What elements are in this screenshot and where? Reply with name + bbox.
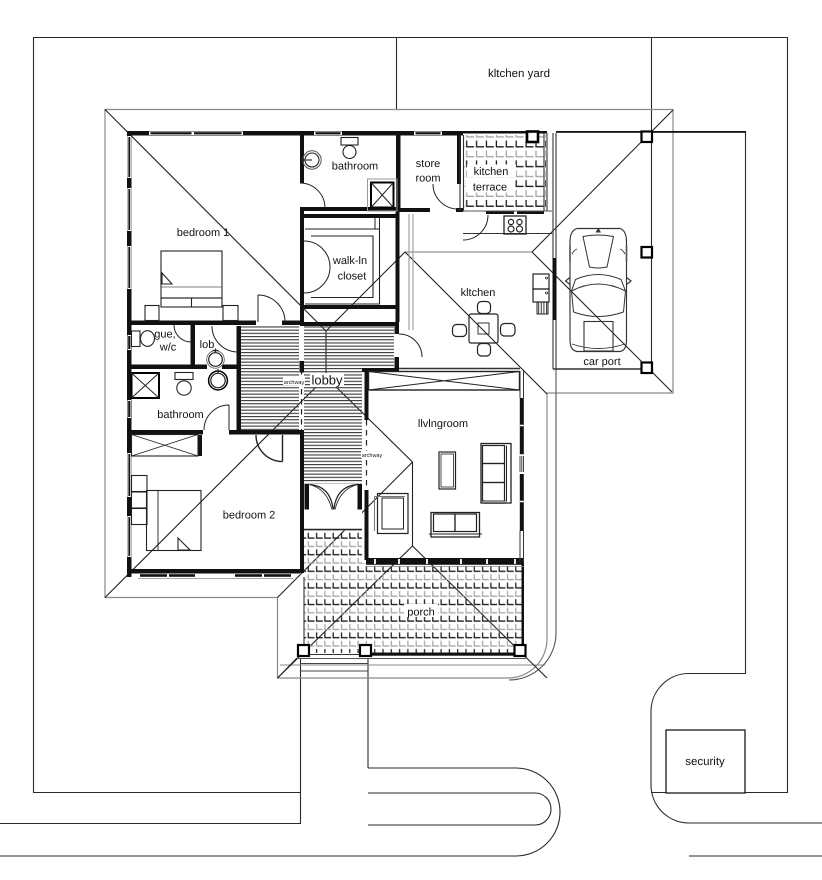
svg-text:store: store [416, 158, 440, 170]
svg-text:gue,: gue, [154, 329, 175, 341]
svg-text:w/c: w/c [159, 342, 177, 354]
svg-text:room: room [415, 173, 440, 185]
svg-text:bathroom: bathroom [157, 409, 203, 421]
svg-text:kitchen: kitchen [474, 166, 509, 178]
svg-text:closet: closet [338, 271, 367, 283]
svg-text:car port: car port [583, 356, 620, 368]
svg-text:porch: porch [407, 607, 435, 619]
svg-text:archway: archway [362, 453, 383, 459]
svg-text:security: security [685, 756, 725, 768]
svg-text:walk-ln: walk-ln [332, 255, 367, 267]
svg-text:kltchen: kltchen [461, 287, 496, 299]
svg-text:kltchen yard: kltchen yard [488, 68, 550, 80]
svg-text:lob: lob [200, 339, 215, 351]
svg-text:archway: archway [284, 380, 305, 386]
svg-text:bedroom 1: bedroom 1 [177, 227, 230, 239]
svg-text:terrace: terrace [473, 182, 507, 194]
svg-text:bedroom 2: bedroom 2 [223, 510, 276, 522]
svg-text:lobby: lobby [311, 373, 343, 388]
svg-text:llvlngroom: llvlngroom [418, 418, 468, 430]
svg-text:bathroom: bathroom [332, 161, 378, 173]
